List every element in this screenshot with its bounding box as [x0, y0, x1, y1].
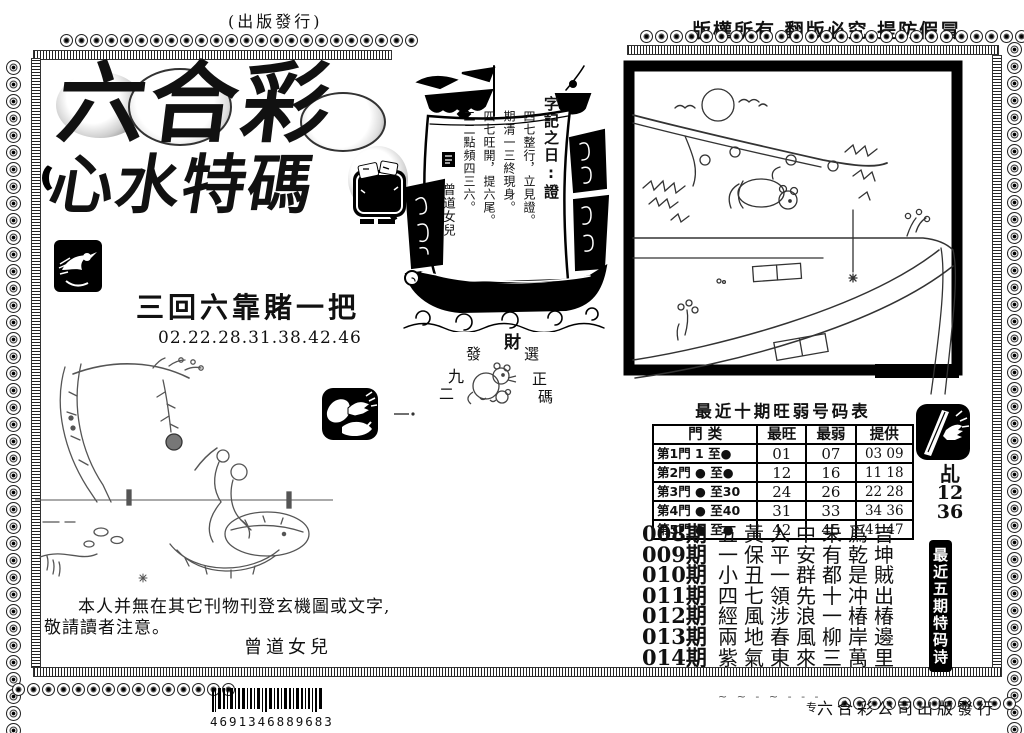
flower-border-motif: [940, 30, 953, 43]
masthead-title: 六合彩: [53, 60, 340, 148]
offer-cell: 03 09: [856, 444, 913, 463]
flower-border-motif: [6, 60, 21, 75]
flower-border-motif: [1007, 93, 1022, 108]
poem-verse: 紫氣東來三萬里: [718, 648, 910, 669]
flower-border-motif: [6, 570, 21, 585]
flower-border-motif: [6, 502, 21, 517]
flower-border-motif: [6, 434, 21, 449]
flower-border-motif: [285, 34, 298, 47]
flower-border-motif: [6, 723, 21, 733]
flower-border-motif: [255, 34, 268, 47]
flower-border-motif: [390, 34, 403, 47]
flower-border-motif: [1007, 552, 1022, 567]
flower-border-motif: [192, 683, 205, 696]
flower-border-motif: [880, 30, 893, 43]
flower-border-motif: [6, 451, 21, 466]
flower-border-motif: [1007, 654, 1022, 669]
flower-border-motif: [1007, 722, 1022, 733]
gate-cell: 第1門 1 至●: [653, 444, 757, 463]
scatter-char: 選: [524, 343, 539, 364]
gate-cell: 第3門 ● 至30: [653, 482, 757, 501]
sail-verse: 期清一三終現身。: [501, 96, 518, 286]
flower-border-motif: [6, 162, 21, 177]
dash-arrow-mark: [394, 410, 416, 418]
sail-verse: 四七整行，立見證。: [521, 96, 538, 286]
flower-border-motif: [1007, 416, 1022, 431]
flower-border-motif: [6, 111, 21, 126]
floral-border-left: [6, 60, 21, 733]
col-header-offer: 提供: [856, 425, 913, 444]
flower-border-motif: [6, 468, 21, 483]
flower-border-motif: [72, 683, 85, 696]
flower-border-motif: [1007, 59, 1022, 74]
flower-border-motif: [1007, 263, 1022, 278]
flower-border-motif: [1007, 212, 1022, 227]
hot-cell: 24: [757, 482, 806, 501]
table-header-row: 門 类 最旺 最弱 提供: [653, 425, 913, 444]
flower-border-motif: [1007, 535, 1022, 550]
floral-border-top-right: [640, 30, 1024, 43]
flower-border-motif: [775, 30, 788, 43]
gate-cell: 第2門 ● 至●: [653, 463, 757, 482]
barcode: [212, 688, 324, 712]
flower-border-motif: [6, 366, 21, 381]
flower-border-motif: [330, 34, 343, 47]
flower-border-motif: [60, 34, 73, 47]
striking-hand-icon: [916, 404, 970, 460]
flower-border-motif: [640, 30, 653, 43]
publisher-prefix: 专: [806, 701, 817, 714]
flower-border-motif: [6, 400, 21, 415]
masthead-subtitle: 心水特碼: [45, 154, 319, 218]
flower-border-motif: [102, 683, 115, 696]
flower-border-motif: [6, 621, 21, 636]
flower-border-motif: [6, 213, 21, 228]
disclaimer-line2: 敬請讀者注意。: [44, 613, 170, 638]
fruit-picking-illustration: [35, 352, 333, 592]
flower-border-motif: [925, 30, 938, 43]
flower-border-motif: [315, 34, 328, 47]
seal-stamp-icon: [442, 152, 455, 167]
weak-cell: 16: [806, 463, 855, 482]
flower-border-motif: [12, 683, 25, 696]
flower-border-motif: [6, 145, 21, 160]
hot-cell: 01: [757, 444, 806, 463]
floral-border-bottom-left: [12, 683, 235, 696]
flower-border-motif: [6, 587, 21, 602]
weak-cell: 33: [806, 501, 855, 520]
gate-cell: 第4門 ● 至40: [653, 501, 757, 520]
weak-cell: 07: [806, 444, 855, 463]
publish-label: (出版發行): [228, 8, 323, 32]
flower-border-motif: [715, 30, 728, 43]
flower-border-motif: [745, 30, 758, 43]
flower-border-motif: [820, 30, 833, 43]
sail-verse-block: 字記之日:證 四七整行，立見證。 期清一三終現身。 四七旺開，提六尾。 二二點頻…: [436, 96, 565, 286]
flower-border-motif: [1007, 127, 1022, 142]
flower-border-motif: [6, 417, 21, 432]
weak-cell: 26: [806, 482, 855, 501]
flower-border-motif: [180, 34, 193, 47]
flower-border-motif: [1007, 280, 1022, 295]
flower-border-motif: [1007, 620, 1022, 635]
flower-border-motif: [27, 683, 40, 696]
flower-border-motif: [865, 30, 878, 43]
flower-border-motif: [1007, 314, 1022, 329]
flower-border-motif: [57, 683, 70, 696]
special-number-poem: 008期 五黃入中未爲吉 009期 一保平安有乾坤 010期 小丑一群都是賊 0…: [642, 524, 910, 668]
sail-verse: 四七旺開，提六尾。: [481, 96, 498, 286]
table-row: 第3門 ● 至30 24 26 22 28: [653, 482, 913, 501]
rat-icon: [460, 354, 520, 408]
table-row: 第2門 ● 至● 12 16 11 18: [653, 463, 913, 482]
flower-border-motif: [135, 34, 148, 47]
flower-border-motif: [177, 683, 190, 696]
flower-border-motif: [6, 332, 21, 347]
flower-border-motif: [6, 349, 21, 364]
table-row: 第4門 ● 至40 31 33 34 36: [653, 501, 913, 520]
col-header-hot: 最旺: [757, 425, 806, 444]
flower-border-motif: [150, 34, 163, 47]
flower-border-motif: [195, 34, 208, 47]
poem-verse: 經風涉浪一椿椿: [718, 606, 910, 627]
flower-border-motif: [1007, 637, 1022, 652]
flower-border-motif: [1007, 246, 1022, 261]
poem-verse: 兩地春風柳岸邊: [718, 627, 910, 648]
flower-border-motif: [655, 30, 668, 43]
flower-border-motif: [1007, 42, 1022, 57]
flower-border-motif: [405, 34, 418, 47]
offer-cell: 34 36: [856, 501, 913, 520]
flower-border-motif: [6, 298, 21, 313]
poem-verse: 五黃入中未爲吉: [718, 524, 910, 545]
poem-issue: 014期: [642, 648, 718, 669]
flower-border-motif: [165, 34, 178, 47]
flower-border-motif: [1007, 467, 1022, 482]
flower-border-motif: [6, 230, 21, 245]
flower-border-motif: [6, 638, 21, 653]
flower-border-motif: [1007, 297, 1022, 312]
flower-border-motif: [1007, 433, 1022, 448]
flower-border-motif: [1007, 144, 1022, 159]
flower-border-motif: [1007, 518, 1022, 533]
flower-border-motif: [1007, 501, 1022, 516]
poem-verse: 四七領先十冲出: [718, 586, 910, 607]
floral-border-right: [1007, 42, 1022, 733]
flower-border-motif: [105, 34, 118, 47]
oracle-number-bottom: 36: [928, 503, 972, 522]
table-title: 最近十期旺弱号码表: [652, 398, 914, 422]
flower-border-motif: [210, 34, 223, 47]
flower-border-motif: [375, 34, 388, 47]
hot-cell: 12: [757, 463, 806, 482]
flower-border-motif: [805, 30, 818, 43]
flower-border-motif: [360, 34, 373, 47]
flower-border-motif: [1007, 450, 1022, 465]
flower-border-motif: [6, 196, 21, 211]
flower-border-motif: [6, 706, 21, 721]
publisher-line: 专六合彩公司出版發行: [806, 695, 997, 719]
flower-border-motif: [6, 247, 21, 262]
flower-border-motif: [6, 264, 21, 279]
flower-border-motif: [850, 30, 863, 43]
flower-border-motif: [1003, 697, 1016, 710]
flower-border-motif: [6, 77, 21, 92]
flower-border-motif: [1007, 671, 1022, 686]
flower-border-motif: [685, 30, 698, 43]
flower-border-motif: [300, 34, 313, 47]
flower-border-motif: [1007, 178, 1022, 193]
flower-border-motif: [75, 34, 88, 47]
flower-border-motif: [117, 683, 130, 696]
rat-charm-group: 財 選 正 碼 發 九 二: [420, 328, 560, 413]
flower-border-motif: [6, 383, 21, 398]
flower-border-motif: [6, 536, 21, 551]
flower-border-motif: [1007, 569, 1022, 584]
table-row: 第1門 1 至● 01 07 03 09: [653, 444, 913, 463]
flower-border-motif: [1007, 586, 1022, 601]
flower-border-motif: [225, 34, 238, 47]
flower-border-motif: [1007, 195, 1022, 210]
flower-border-motif: [1007, 399, 1022, 414]
sail-verse: 二二點頻四三六。: [461, 96, 478, 286]
flower-border-motif: [1007, 229, 1022, 244]
lottery-tip-sheet: (出版發行) 版權所有 翻版必究 提防假冒 六合彩 心水特碼: [0, 0, 1024, 733]
flower-border-motif: [1007, 365, 1022, 380]
flower-border-motif: [1007, 331, 1022, 346]
flower-border-motif: [147, 683, 160, 696]
poem-row: 014期 紫氣東來三萬里: [642, 648, 910, 669]
flower-border-motif: [730, 30, 743, 43]
hot-cell: 31: [757, 501, 806, 520]
flower-border-motif: [6, 655, 21, 670]
barcode-block: 4691346889683: [210, 688, 326, 728]
flower-border-motif: [42, 683, 55, 696]
author-signature: 曾道女兒: [244, 633, 332, 659]
flower-border-motif: [1007, 382, 1022, 397]
sail-signature: 曾道女兒: [441, 183, 456, 237]
riddle-picture-frame: [623, 60, 963, 397]
flower-border-motif: [895, 30, 908, 43]
flower-border-motif: [345, 34, 358, 47]
sail-signature-column: 曾道女兒: [439, 96, 458, 286]
flower-border-motif: [1007, 76, 1022, 91]
flower-border-motif: [6, 553, 21, 568]
lucky-numbers: 02.22.28.31.38.42.46: [158, 328, 362, 348]
flower-border-motif: [1007, 603, 1022, 618]
floral-border-top-left: [60, 34, 418, 47]
flower-border-motif: [970, 30, 983, 43]
flower-border-motif: [985, 30, 998, 43]
flower-border-motif: [6, 128, 21, 143]
flower-border-motif: [6, 485, 21, 500]
flower-border-motif: [790, 30, 803, 43]
flower-border-motif: [955, 30, 968, 43]
flower-border-motif: [87, 683, 100, 696]
flower-border-motif: [1007, 484, 1022, 499]
scatter-char: 二: [439, 383, 454, 404]
hatched-rule-top-right: [627, 45, 999, 55]
flower-border-motif: [835, 30, 848, 43]
flower-border-motif: [760, 30, 773, 43]
flower-border-motif: [6, 519, 21, 534]
hot-cold-table-block: 最近十期旺弱号码表 門 类 最旺 最弱 提供 第1門 1 至● 01 07 03…: [652, 398, 914, 540]
sail-heading: 字記之日:證: [541, 96, 562, 286]
hatched-rule-right: [992, 55, 1002, 669]
flower-border-motif: [6, 94, 21, 109]
oracle-numbers-block: 乩 12 36: [928, 464, 972, 522]
poem-verse: 一保平安有乾坤: [718, 545, 910, 566]
flower-border-motif: [132, 683, 145, 696]
offer-cell: 22 28: [856, 482, 913, 501]
poem-verse: 小丑一群都是賊: [718, 565, 910, 586]
publisher-name: 六合彩公司出版發行: [817, 699, 997, 718]
flower-border-motif: [6, 604, 21, 619]
flower-border-motif: [670, 30, 683, 43]
scatter-char: 財: [504, 328, 521, 353]
flower-border-motif: [162, 683, 175, 696]
flower-border-motif: [270, 34, 283, 47]
col-header-gate: 門 类: [653, 425, 757, 444]
flower-border-motif: [700, 30, 713, 43]
scatter-char: 碼: [538, 386, 553, 407]
offer-cell: 11 18: [856, 463, 913, 482]
flower-border-motif: [6, 315, 21, 330]
slogan-heading: 三回六靠賭一把: [136, 286, 360, 326]
flower-border-motif: [6, 179, 21, 194]
flower-border-motif: [120, 34, 133, 47]
oracle-char: 乩: [928, 464, 972, 484]
flower-border-motif: [1007, 110, 1022, 125]
flower-border-motif: [90, 34, 103, 47]
vertical-section-title: 最近五期特码诗: [929, 540, 952, 672]
flower-border-motif: [910, 30, 923, 43]
flying-bird-icon: [54, 240, 102, 292]
flower-border-motif: [1007, 161, 1022, 176]
flower-border-motif: [1007, 348, 1022, 363]
flower-border-motif: [6, 281, 21, 296]
flower-border-motif: [240, 34, 253, 47]
col-header-weak: 最弱: [806, 425, 855, 444]
barcode-digits: 4691346889683: [210, 716, 326, 728]
